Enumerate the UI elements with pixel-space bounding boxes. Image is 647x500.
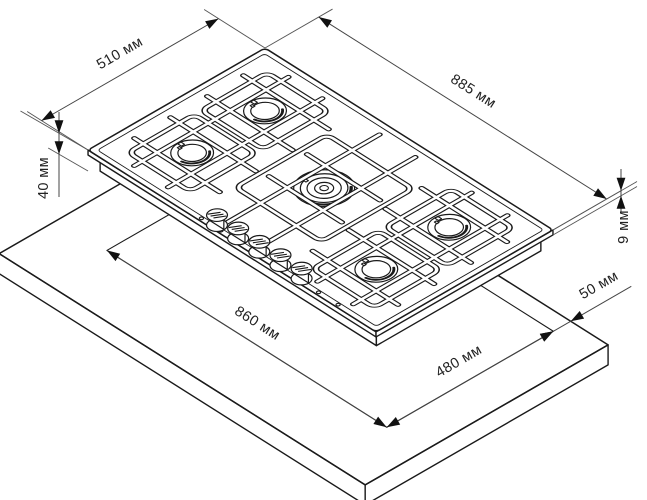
dimension-clearance-label: 50 мм bbox=[577, 268, 621, 303]
worktop-front-right-face bbox=[349, 345, 625, 500]
extension-line bbox=[48, 148, 88, 171]
installation-diagram: 510 мм885 мм40 мм9 мм860 мм480 мм50 мм bbox=[0, 0, 647, 500]
dimension-hob-width-label: 885 мм bbox=[447, 71, 498, 112]
extension-line bbox=[265, 9, 333, 48]
dimension-hob-depth-label: 510 мм bbox=[94, 34, 146, 73]
dimension-arrow bbox=[319, 17, 332, 28]
dimension-arrow bbox=[205, 19, 218, 29]
dimension-body-height-label: 40 мм bbox=[36, 157, 52, 199]
dimension-arrow bbox=[593, 188, 606, 199]
dimension-rim-height-label: 9 мм bbox=[616, 210, 632, 244]
dimension-arrow bbox=[571, 311, 584, 321]
diagram-stage: 510 мм885 мм40 мм9 мм860 мм480 мм50 мм bbox=[0, 0, 647, 500]
dimension-arrow bbox=[42, 110, 56, 120]
extension-line bbox=[204, 10, 265, 48]
